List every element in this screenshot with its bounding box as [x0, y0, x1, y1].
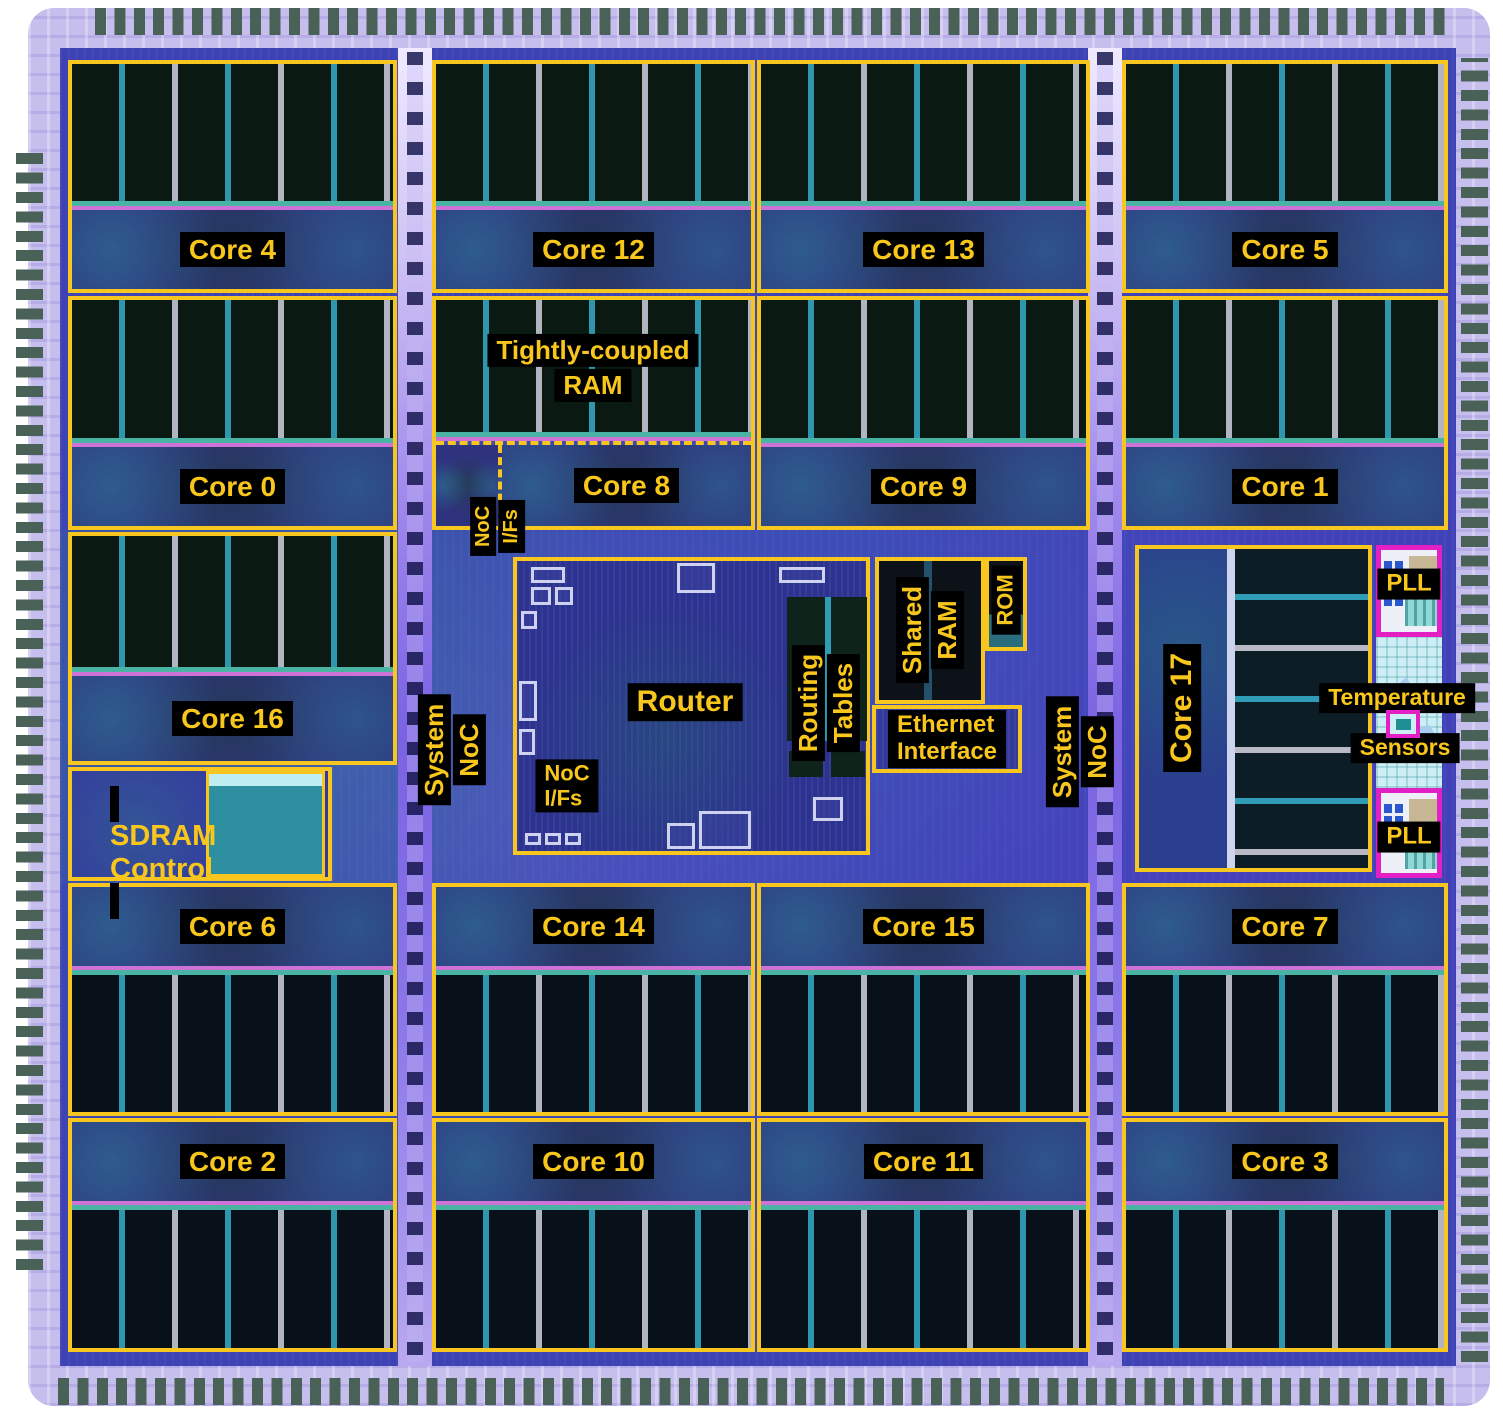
rom-label: ROM: [992, 565, 1021, 634]
core-4-region: Core 4: [68, 60, 397, 293]
core-13-ram: [761, 64, 1086, 210]
pad-row-top: [95, 8, 1445, 35]
core-7-region: Core 7: [1122, 883, 1448, 1116]
core-10-region: Core 10: [432, 1118, 755, 1352]
core-5-label: Core 5: [1232, 232, 1337, 267]
router-noc-ifs-line1: NoC: [544, 761, 589, 786]
core-7-label: Core 7: [1232, 909, 1337, 944]
core-8-label-strip: Core 8: [502, 445, 751, 526]
pad-column-left: [16, 150, 43, 1270]
core-14-strip: Core 14: [436, 887, 751, 966]
die-photo: Core 4Core 0Core 16Core 6Core 2Core 12Co…: [0, 0, 1503, 1413]
router-cell: [519, 681, 537, 721]
core-2-ram: [72, 1201, 393, 1348]
core-7-strip: Core 7: [1126, 887, 1444, 966]
router-cell: [531, 567, 565, 583]
core-3-label: Core 3: [1232, 1144, 1337, 1179]
router-cell: [667, 823, 695, 849]
core-13-label: Core 13: [863, 232, 984, 267]
sdram-control-label: SDRAM Control: [110, 788, 216, 918]
tcm-label-line2: RAM: [554, 369, 631, 402]
pll-bottom-region: PLL: [1376, 788, 1442, 878]
core-0-region: Core 0: [68, 296, 397, 530]
router-cell: [565, 833, 581, 845]
system-noc-left-line1: System: [418, 695, 451, 806]
core-16-label: Core 16: [172, 701, 293, 736]
temperature-label: Temperature: [1319, 683, 1475, 713]
system-noc-left-line2: NoC: [453, 714, 486, 785]
core-15-ram: [761, 966, 1086, 1112]
core-14-label: Core 14: [533, 909, 654, 944]
core-12-ram: [436, 64, 751, 210]
core-16-region: Core 16: [68, 532, 397, 765]
router-cell: [519, 729, 535, 755]
core-11-ram: [761, 1201, 1086, 1348]
router-cell: [555, 587, 573, 605]
core-2-region: Core 2: [68, 1118, 397, 1352]
system-noc-left-label: System NoC: [418, 695, 486, 806]
shared-ram-line2: RAM: [931, 591, 964, 668]
routing-tables-line1: Routing: [792, 645, 825, 761]
core-16-ram: [72, 536, 393, 676]
ethernet-line1: Ethernet: [897, 712, 997, 739]
core-12-strip: Core 12: [436, 210, 751, 289]
sensor-die: [1396, 719, 1411, 730]
pll-top-region: PLL: [1376, 545, 1442, 637]
core-7-ram: [1126, 966, 1444, 1112]
tcm-label-line1: Tightly-coupled: [487, 334, 698, 367]
core-0-strip: Core 0: [72, 447, 393, 526]
core-17-label: Core 17: [1163, 644, 1201, 772]
core-10-strip: Core 10: [436, 1122, 751, 1201]
core-11-strip: Core 11: [761, 1122, 1086, 1201]
core-15-region: Core 15: [757, 883, 1090, 1116]
pll-bottom-label: PLL: [1377, 822, 1440, 853]
temperature-sensor-box: [1386, 710, 1420, 738]
shared-ram-label: Shared RAM: [896, 577, 964, 683]
core-3-strip: Core 3: [1126, 1122, 1444, 1201]
core-8-region: NoC I/Fs Core 8: [432, 296, 755, 530]
core-1-ram: [1126, 300, 1444, 447]
core-8-strip: NoC I/Fs Core 8: [436, 441, 751, 526]
core-11-region: Core 11: [757, 1118, 1090, 1352]
router-label-wrap: Router: [628, 683, 743, 721]
router-cell: [813, 797, 843, 821]
core-9-label: Core 9: [871, 469, 976, 504]
core-13-strip: Core 13: [761, 210, 1086, 289]
noc-ifs-label-line2: I/Fs: [499, 500, 525, 552]
core-0-label: Core 0: [180, 469, 285, 504]
core-9-region: Core 9: [757, 296, 1090, 530]
core-14-region: Core 14: [432, 883, 755, 1116]
core-12-label: Core 12: [533, 232, 654, 267]
core-17-label-wrap: Core 17: [1163, 644, 1201, 772]
router-cell: [525, 833, 541, 845]
core-10-ram: [436, 1201, 751, 1348]
core-13-region: Core 13: [757, 60, 1090, 293]
core-1-region: Core 1: [1122, 296, 1448, 530]
core-1-strip: Core 1: [1126, 447, 1444, 526]
core-1-label: Core 1: [1232, 469, 1337, 504]
core-9-strip: Core 9: [761, 447, 1086, 526]
core-5-ram: [1126, 64, 1444, 210]
core-0-ram: [72, 300, 393, 447]
core-11-label: Core 11: [864, 1144, 983, 1179]
core-2-label: Core 2: [180, 1144, 285, 1179]
router-noc-ifs-line2: I/Fs: [544, 786, 589, 811]
routing-tables-label: Routing Tables: [792, 645, 860, 761]
pad-row-bottom: [58, 1378, 1444, 1405]
sdram-line1: SDRAM: [110, 820, 216, 852]
pll-bottom-label-wrap: PLL: [1377, 822, 1440, 853]
system-noc-right-label: System NoC: [1046, 697, 1114, 808]
core-10-label: Core 10: [533, 1144, 654, 1179]
shared-ram-line1: Shared: [896, 577, 929, 683]
core-4-strip: Core 4: [72, 210, 393, 289]
core-3-region: Core 3: [1122, 1118, 1448, 1352]
noc-ifs-label-line1: NoC: [471, 496, 497, 555]
core-3-ram: [1126, 1201, 1444, 1348]
ethernet-line2: Interface: [897, 739, 997, 766]
routing-tables-line2: Tables: [827, 654, 860, 752]
core-5-strip: Core 5: [1126, 210, 1444, 289]
sdram-line2: Control: [110, 853, 216, 885]
router-cell: [521, 611, 537, 629]
system-noc-right-line1: System: [1046, 697, 1079, 808]
sdram-phy-block: [206, 771, 325, 877]
pll-top-label: PLL: [1377, 569, 1440, 600]
core-16-strip: Core 16: [72, 676, 393, 761]
core-9-ram: [761, 300, 1086, 447]
core-15-label: Core 15: [863, 909, 984, 944]
router-cell: [545, 833, 561, 845]
core-4-ram: [72, 64, 393, 210]
router-label: Router: [628, 683, 743, 721]
core-15-strip: Core 15: [761, 887, 1086, 966]
router-cell: [779, 567, 825, 583]
core-2-strip: Core 2: [72, 1122, 393, 1201]
router-cell: [699, 811, 751, 849]
core-12-region: Core 12: [432, 60, 755, 293]
core-8-label: Core 8: [574, 468, 679, 503]
rom-label-wrap: ROM: [992, 565, 1021, 634]
pll-top-label-wrap: PLL: [1377, 569, 1440, 600]
core-5-region: Core 5: [1122, 60, 1448, 293]
core-14-ram: [436, 966, 751, 1112]
core-17-divider: [1227, 549, 1235, 868]
core-4-label: Core 4: [180, 232, 285, 267]
ethernet-interface-label: Ethernet Interface: [888, 710, 1006, 768]
tightly-coupled-ram-label: Tightly-coupled RAM: [487, 334, 698, 402]
noc-ifs-block: NoC I/Fs: [436, 445, 502, 526]
router-noc-ifs-label: NoC I/Fs: [535, 759, 598, 812]
temperature-label-wrap: Temperature: [1319, 683, 1475, 713]
router-cell: [677, 563, 715, 593]
system-noc-right-line2: NoC: [1081, 716, 1114, 787]
core-6-ram: [72, 966, 393, 1112]
router-cell: [531, 587, 551, 605]
